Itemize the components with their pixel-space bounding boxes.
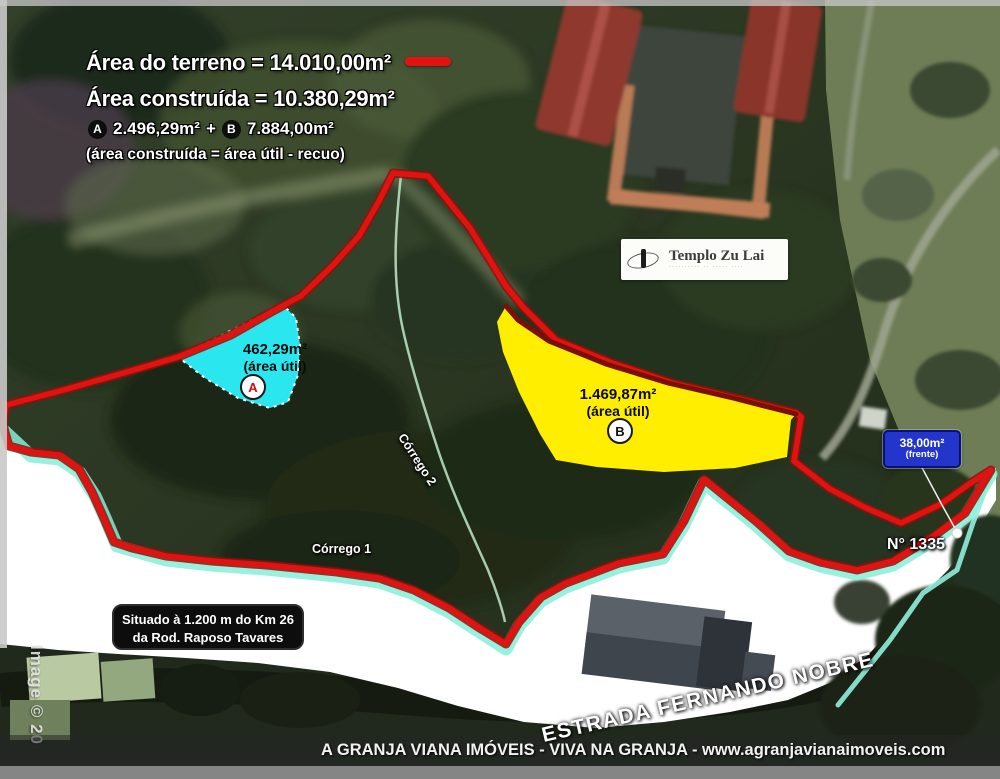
street-number-label: N° 1335 <box>887 536 945 554</box>
area-terreno-line: Área do terreno = 14.010,00m² <box>86 50 451 76</box>
badge-b-dark: B <box>222 120 241 139</box>
region-b-label: 1.469,87m² (área útil) <box>543 386 693 419</box>
property-map-image: Área do terreno = 14.010,00m² Área const… <box>0 0 1000 779</box>
region-a-label: 462,29m² (área útil) <box>200 341 350 374</box>
badge-a-dark: A <box>88 120 107 139</box>
location-info-line1: Situado à 1.200 m do Km 26 <box>114 611 302 629</box>
footer-agency-text: A GRANJA VIANA IMÓVEIS - VIVA NA GRANJA … <box>321 741 945 760</box>
frente-point-marker <box>952 528 962 538</box>
image-copyright-watermark: Image © 20 <box>26 645 46 745</box>
bottom-gray-strip <box>0 766 1000 779</box>
corrego-1-label: Córrego 1 <box>312 542 371 556</box>
region-b-badge: B <box>607 418 633 444</box>
region-a-area: 462,29m² <box>200 341 350 358</box>
red-dash-highlight <box>405 57 451 66</box>
frente-note: (frente) <box>906 450 939 460</box>
location-info-line2: da Rod. Raposo Tavares <box>114 629 302 647</box>
region-a-note: (área útil) <box>200 358 350 374</box>
frente-measure-box: 38,00m² (frente) <box>883 430 961 468</box>
plus-sign: + <box>206 119 216 139</box>
location-info-box: Situado à 1.200 m do Km 26 da Rod. Rapos… <box>112 604 304 650</box>
area-b-value: 7.884,00m² <box>247 119 334 139</box>
pond <box>862 169 934 221</box>
region-b-note: (área útil) <box>543 403 693 419</box>
area-note-line: (área construída = área útil - recuo) <box>86 146 345 164</box>
area-breakdown-line: A 2.496,29m² + B 7.884,00m² <box>88 119 334 139</box>
small-house-roof <box>859 406 888 429</box>
area-construida-line: Área construída = 10.380,29m² <box>86 86 395 112</box>
left-border-strip <box>0 0 7 648</box>
templo-zu-lai-title: Templo Zu Lai <box>669 249 764 265</box>
region-a-badge: A <box>240 374 266 400</box>
area-a-value: 2.496,29m² <box>113 119 200 139</box>
top-border-strip <box>0 0 1000 6</box>
templo-zu-lai-subtitle: ·········· ·· ····· ···· <box>669 265 764 270</box>
templo-zu-lai-label: Templo Zu Lai ·········· ·· ····· ···· <box>621 239 788 280</box>
templo-zu-lai-logo-icon <box>626 247 662 273</box>
area-terreno-text: Área do terreno = 14.010,00m² <box>86 50 391 75</box>
region-b-area: 1.469,87m² <box>543 386 693 403</box>
